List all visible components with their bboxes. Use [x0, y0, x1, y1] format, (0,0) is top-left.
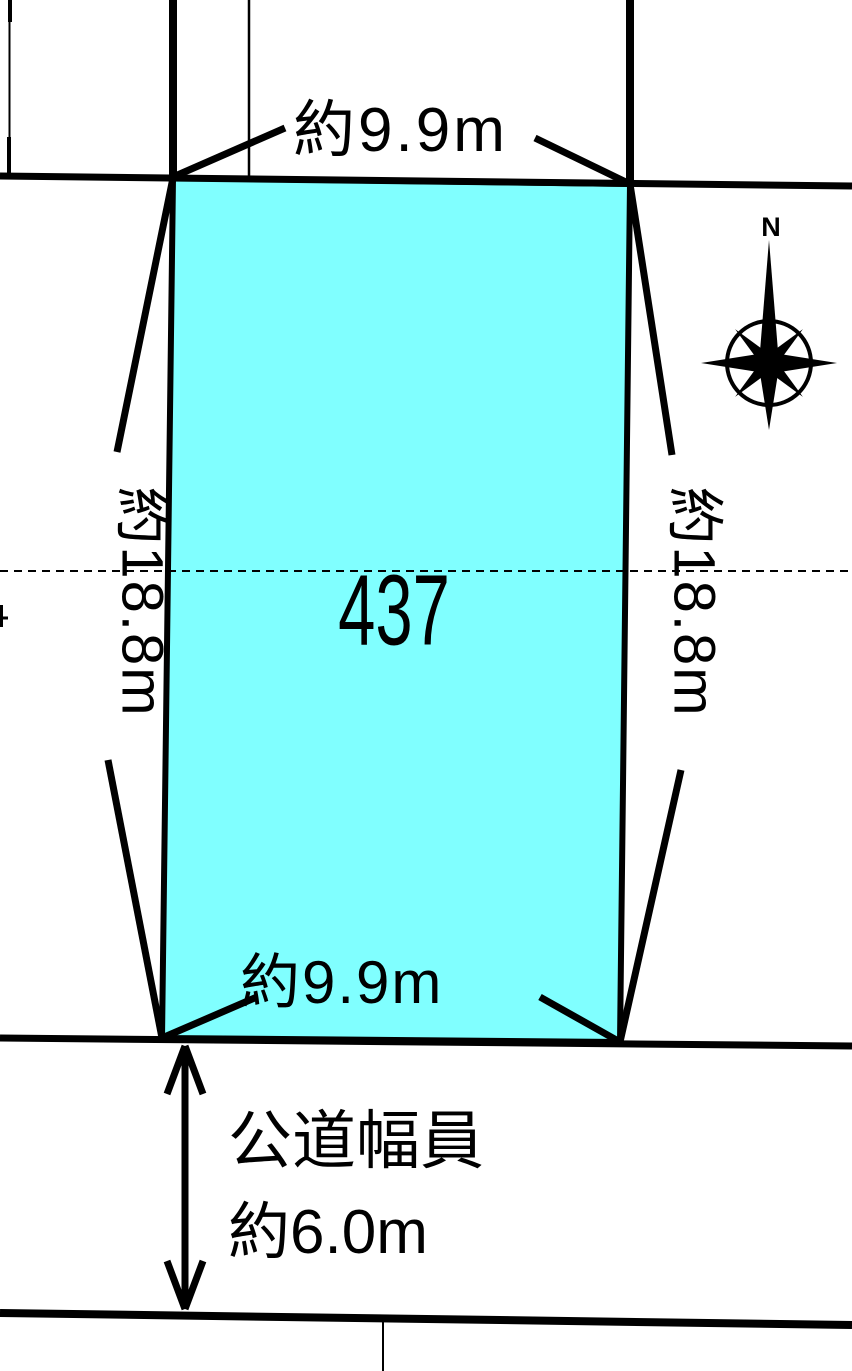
road-far-edge-line	[0, 1313, 852, 1325]
leader-right-depth-lower	[620, 770, 681, 1042]
leader-top-frontage-right	[535, 138, 630, 184]
leader-left-depth-lower	[108, 760, 162, 1038]
leader-top-frontage-left	[173, 128, 285, 177]
road-width-label-line2: 約6.0m	[228, 1200, 428, 1265]
frontage-dimension-label-bottom: 約9.9m	[240, 951, 443, 1014]
frontage-dimension-label-top: 約9.9m	[293, 98, 508, 163]
leader-right-depth-upper	[630, 184, 672, 455]
compass-point-north	[760, 240, 778, 363]
compass-rose-icon	[701, 240, 837, 430]
land-plot-diagram: 約9.9m 約18.8m 約18.8m 437 約9.9m 公道幅員 約6.0m…	[0, 0, 852, 1371]
road-width-label-line1: 公道幅員	[228, 1108, 484, 1175]
road-boundary-lower-line	[0, 1038, 852, 1046]
depth-dimension-label-right: 約18.8m	[663, 486, 724, 717]
compass-north-label: N	[761, 213, 781, 241]
leader-left-depth-upper	[117, 178, 173, 452]
road-boundary-upper-line	[0, 176, 852, 186]
depth-dimension-label-left: 約18.8m	[111, 486, 172, 717]
lot-number: 437	[338, 559, 450, 664]
road-width-arrow	[167, 1046, 203, 1309]
